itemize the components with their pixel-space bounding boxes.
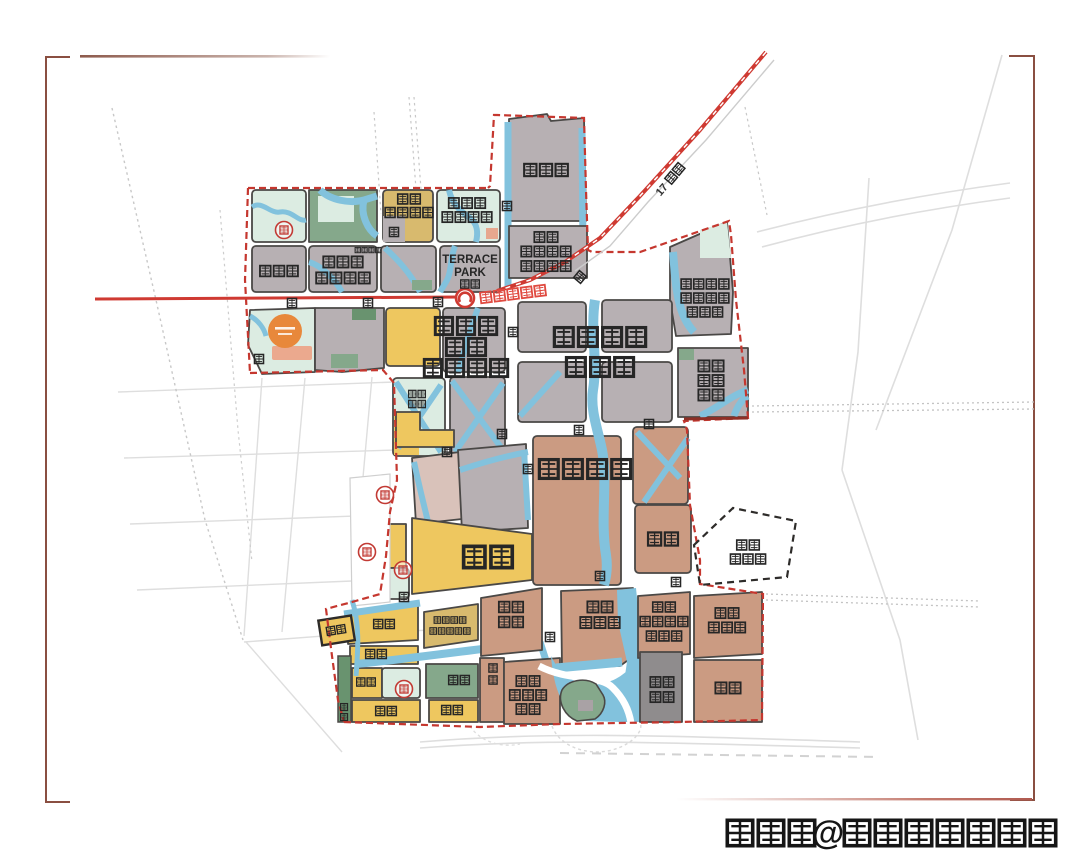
svg-text:TERRACE: TERRACE — [442, 254, 498, 266]
svg-text:@: @ — [812, 814, 844, 851]
svg-text:PARK: PARK — [454, 267, 486, 279]
